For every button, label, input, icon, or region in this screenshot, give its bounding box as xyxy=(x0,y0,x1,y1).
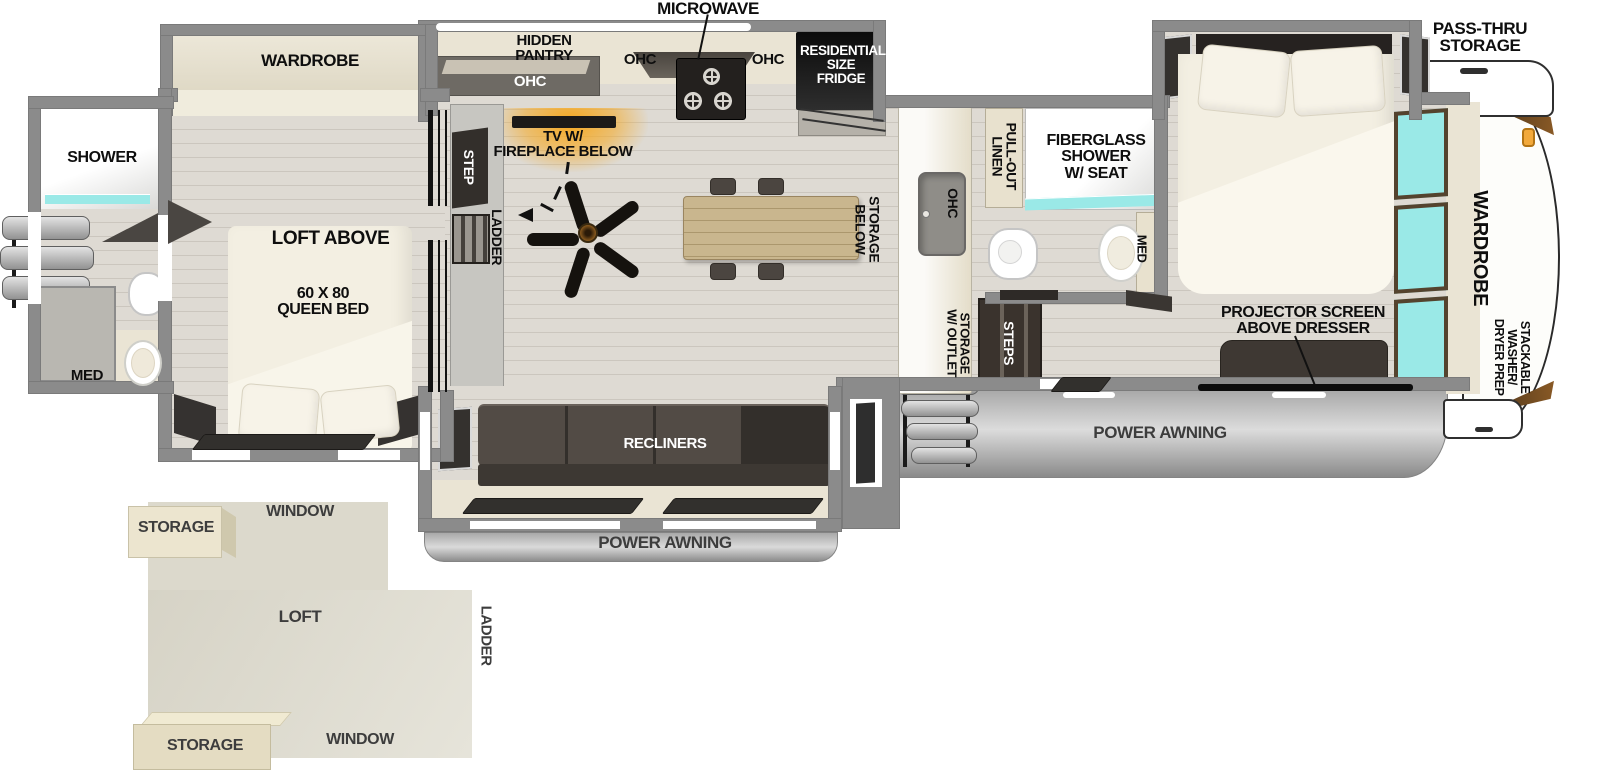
entry-step-4 xyxy=(911,447,977,464)
rear-bath-door-gap xyxy=(28,212,41,304)
recliner-sofa-base xyxy=(478,464,830,486)
pass-thru-door-handle xyxy=(1460,68,1488,74)
tv-pointer-arrowhead-icon xyxy=(518,208,533,222)
rear-bedroom-top-wall-b xyxy=(420,88,450,102)
tv-fireplace-label: TV W/ FIREPLACE BELOW xyxy=(478,129,648,160)
island-ohc-label: OHC xyxy=(946,183,960,223)
loft-window-bottom-label: WINDOW xyxy=(300,732,420,748)
island-faucet-icon xyxy=(922,210,930,218)
entry-step-3 xyxy=(906,423,978,440)
mid-bath-med-label: MED xyxy=(1135,229,1148,269)
entry-door-window xyxy=(856,402,875,483)
hidden-pantry-label: HIDDEN PANTRY xyxy=(488,33,600,64)
dining-chair-3 xyxy=(710,263,736,280)
rear-bottom-window-gap-2 xyxy=(338,450,400,460)
interior-steps-label: STEPS xyxy=(1002,313,1016,373)
stored-ladder xyxy=(452,214,490,264)
rear-shower-label: SHOWER xyxy=(58,150,146,166)
bed-slide-wall-left xyxy=(1152,20,1165,120)
recliner-wall-window-right xyxy=(830,412,840,470)
mid-bath-sink-basin xyxy=(1107,236,1135,270)
dining-table xyxy=(683,196,859,260)
storage-below-label: STORAGE BELOW xyxy=(853,186,882,272)
front-bed-pillow-left xyxy=(1197,44,1291,119)
power-awning-left-label: POWER AWNING xyxy=(545,534,785,551)
fridge-label: RESIDENTIAL SIZE FRIDGE xyxy=(800,44,882,85)
wardrobe-mirror-door-1 xyxy=(1394,108,1448,200)
loft-storage-bottom-label: STORAGE xyxy=(145,738,265,754)
stove-burner-icon-3 xyxy=(714,92,732,110)
wardrobe-mirror-door-2 xyxy=(1394,202,1448,294)
ladder-label: LADDER xyxy=(490,205,504,269)
dining-chair-1 xyxy=(710,178,736,195)
stackable-washer-dryer-label: STACKABLE WASHER/ DRYER PREP xyxy=(1493,295,1531,419)
recliner-wall-window-left xyxy=(420,412,430,470)
railing-upper xyxy=(428,110,448,206)
queen-bed-label: 60 X 80 QUEEN BED xyxy=(258,286,388,319)
rear-bath-sink-basin xyxy=(131,348,155,378)
railing-lower xyxy=(428,240,448,392)
rear-bed-mat xyxy=(192,434,377,450)
cap-handle-icon xyxy=(1522,128,1535,147)
entry-step-2 xyxy=(901,400,979,417)
loft-window-top-label: WINDOW xyxy=(245,504,355,520)
loft-label: LOFT xyxy=(255,608,345,625)
front-bed-pillow-right xyxy=(1290,45,1386,117)
fiberglass-shower-label: FIBERGLASS SHOWER W/ SEAT xyxy=(1028,133,1164,182)
tv-unit xyxy=(512,116,616,128)
recliner-bottom-dash-2 xyxy=(663,521,816,529)
rear-bath-wall-top xyxy=(28,96,174,109)
front-wardrobe-label: WARDROBE xyxy=(1470,173,1490,323)
stove-burner-icon-1 xyxy=(703,68,720,85)
ohc-left-label: OHC xyxy=(618,52,662,67)
recliner-bottom-dash-1 xyxy=(470,521,620,529)
recliners-label: RECLINERS xyxy=(555,436,775,451)
ceiling-fan-icon xyxy=(536,181,640,285)
recliner-mat-right xyxy=(662,498,825,514)
projector-screen-label: PROJECTOR SCREEN ABOVE DRESSER xyxy=(1203,305,1403,338)
lower-storage-door-handle xyxy=(1475,427,1493,432)
rear-step-2 xyxy=(0,246,94,270)
rear-shower-threshold-cyan xyxy=(45,194,150,204)
rear-bedroom-right-wall-lower xyxy=(440,390,454,462)
mid-bath-right-wall xyxy=(1154,95,1168,305)
fifth-wheel-floorplan: PASS-THRU STORAGE POWER AWNING HIDDEN PA… xyxy=(0,0,1600,773)
dining-chair-4 xyxy=(758,263,784,280)
power-awning-right-label: POWER AWNING xyxy=(1040,424,1280,441)
rear-bottom-window-gap-1 xyxy=(192,450,250,460)
recliner-mat-left xyxy=(462,498,645,514)
loft-ladder-label: LADDER xyxy=(478,601,493,671)
step-label: STEP xyxy=(462,142,476,192)
bed-slide-wall-top xyxy=(1152,20,1422,32)
pantry-ohc-label: OHC xyxy=(500,74,560,89)
projector-screen-bar xyxy=(1198,384,1413,391)
mid-bath-threshold xyxy=(1000,290,1058,300)
awning-top-dash1 xyxy=(1063,392,1115,398)
rear-med-label: MED xyxy=(55,368,119,383)
microwave-label: MICROWAVE xyxy=(638,0,778,17)
loft-storage-top-label: STORAGE xyxy=(126,520,226,536)
pull-out-linen-label: PULL-OUT LINEN xyxy=(990,112,1019,200)
awning-top-dash2 xyxy=(1272,392,1326,398)
rear-wardrobe-wall-right xyxy=(425,24,438,116)
floorplan-page: { "colors": { "wall_gray": "#8b8b8b", "f… xyxy=(0,0,1600,773)
rear-step-1 xyxy=(2,216,90,240)
mid-bath-toilet-bowl xyxy=(998,240,1022,264)
rear-wardrobe-cabinet-front xyxy=(173,90,425,116)
pass-thru-storage-label: PASS-THRU STORAGE xyxy=(1398,20,1562,55)
top-wall-mid xyxy=(878,95,1170,108)
loft-above-label: LOFT ABOVE xyxy=(248,229,413,248)
ohc-right-label: OHC xyxy=(746,52,790,67)
rear-wardrobe-label: WARDROBE xyxy=(235,52,385,69)
storage-outlet-label: STORAGE W/ OUTLET xyxy=(945,295,972,391)
stove-burner-icon-2 xyxy=(684,92,702,110)
dining-chair-2 xyxy=(758,178,784,195)
rear-wardrobe-wall-top xyxy=(160,24,438,36)
